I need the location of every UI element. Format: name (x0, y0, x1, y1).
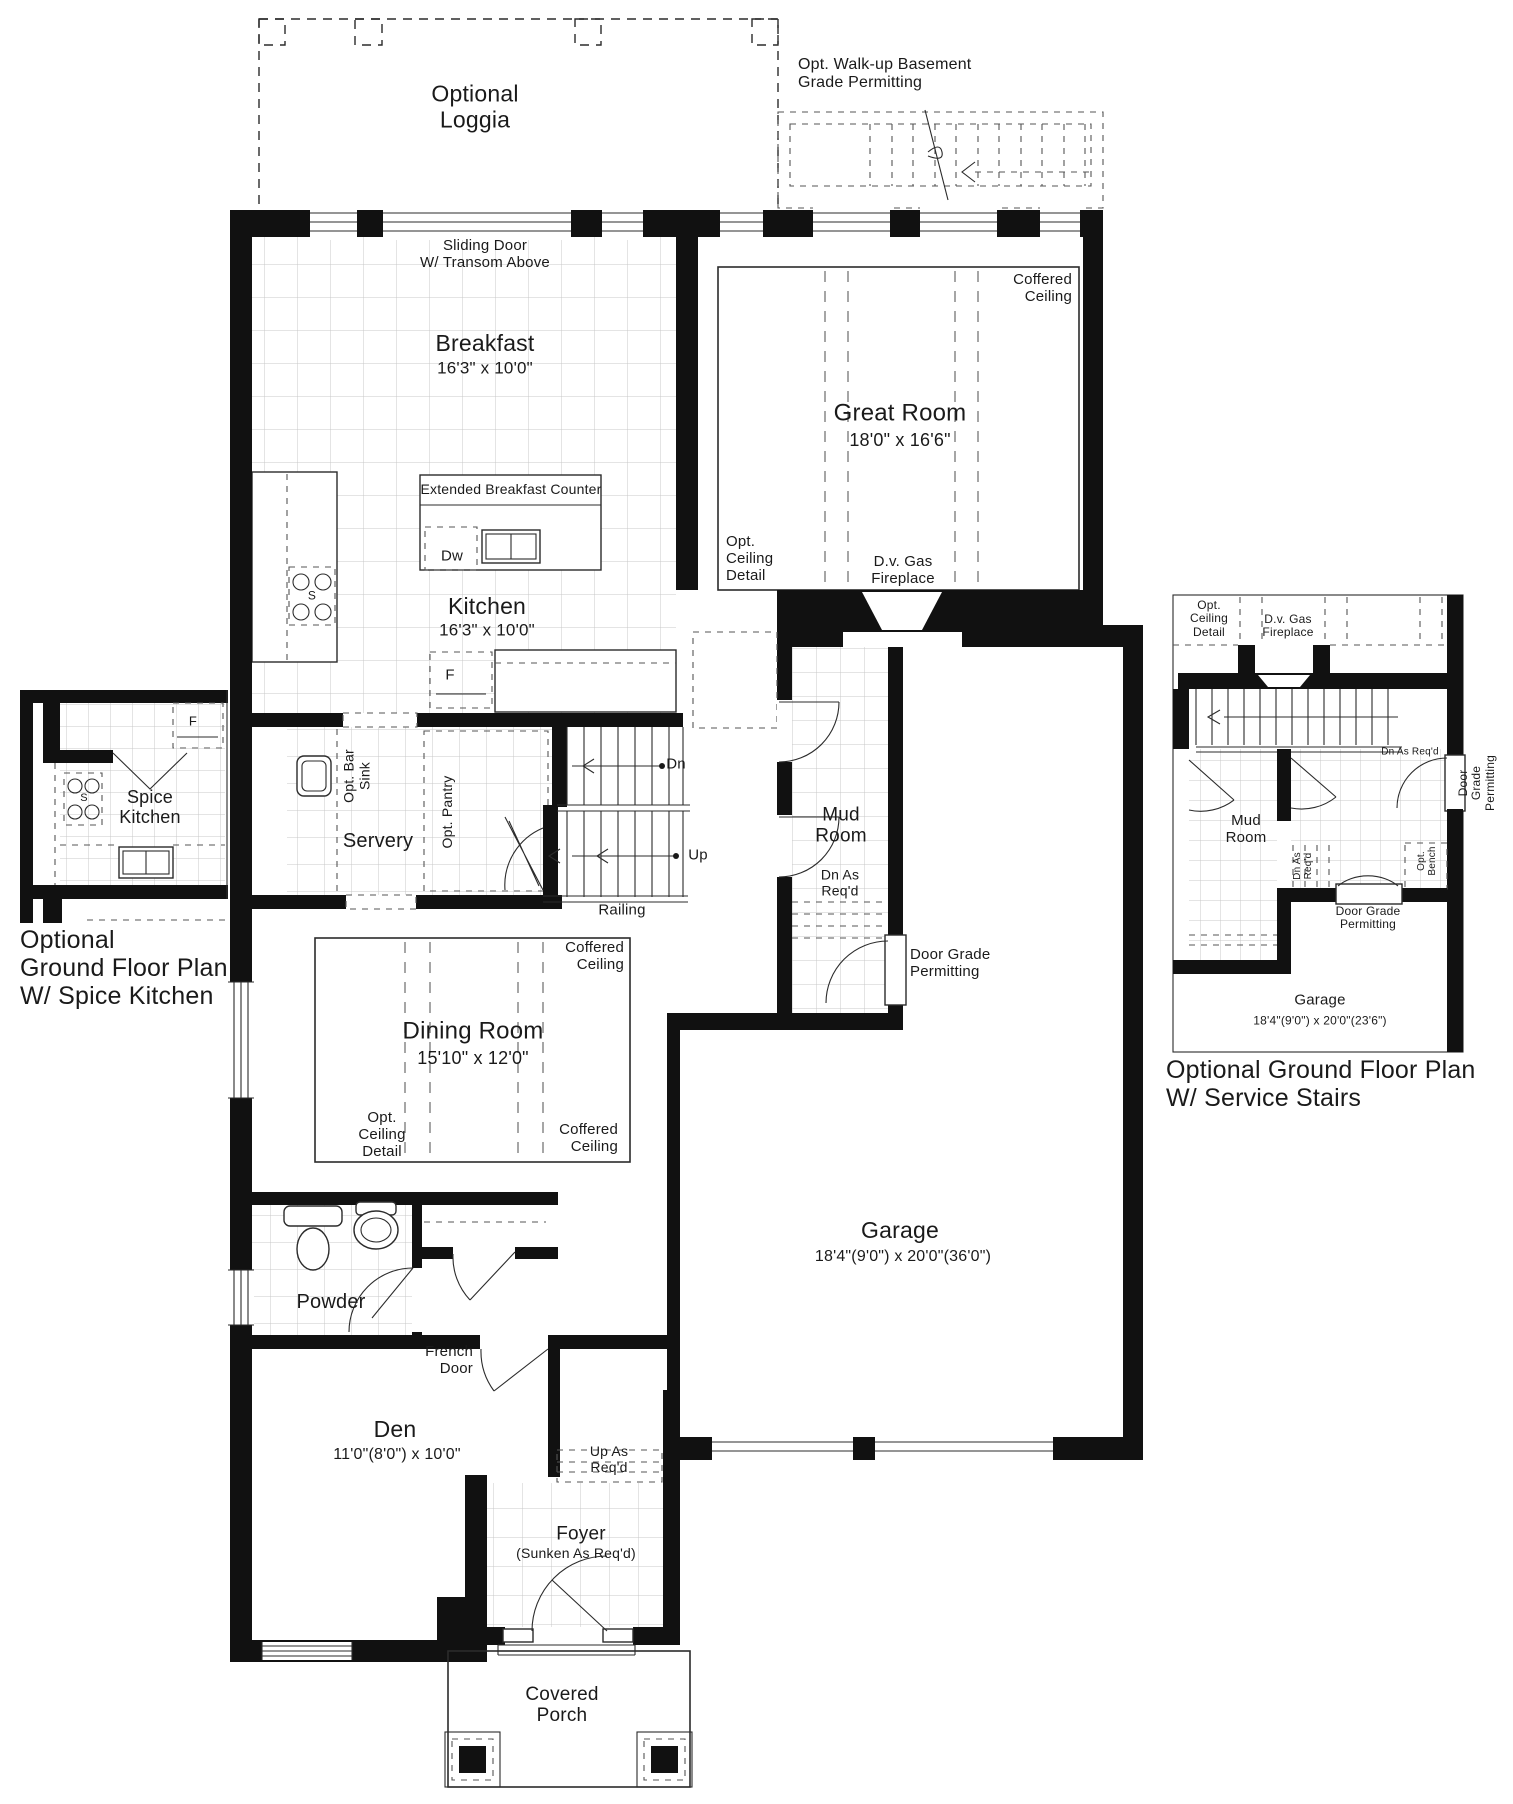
dishwasher-label: Dw (441, 549, 463, 566)
great-room-size: 18'0" x 16'6" (849, 430, 950, 450)
ri-dn-as-reqd-v: Dn As Req'd (1292, 852, 1314, 880)
mud-room-dn-as-reqd: Dn As Req'd (821, 867, 859, 898)
garage-name: Garage (861, 1218, 939, 1244)
spice-kitchen-fridge-label: F (189, 715, 197, 730)
railing-label: Railing (598, 903, 645, 920)
breakfast-name: Breakfast (436, 331, 535, 357)
opt-bar-sink-label: Opt. Bar Sink (341, 749, 372, 803)
den-name: Den (374, 1417, 417, 1443)
up-as-reqd-label: Up As Req'd (590, 1444, 628, 1475)
great-room-name: Great Room (834, 401, 967, 428)
dining-room-name: Dining Room (403, 1019, 544, 1046)
ri-door-grade-permitting-v: Door Grade Permitting (1457, 755, 1497, 811)
covered-porch-name: Covered Porch (525, 1684, 598, 1727)
dining-room-size: 15'10" x 12'0" (417, 1048, 529, 1068)
loggia-label: Optional Loggia (431, 81, 518, 133)
floor-plan-page: Optional LoggiaOpt. Walk-up Basement Gra… (0, 0, 1513, 1804)
extended-breakfast-counter-label: Extended Breakfast Counter (420, 482, 601, 498)
breakfast-size: 16'3" x 10'0" (437, 358, 533, 377)
great-room-coffered-ceiling: Coffered Ceiling (1013, 272, 1072, 306)
kitchen-name: Kitchen (448, 594, 526, 620)
ri-opt-ceiling-detail: Opt. Ceiling Detail (1190, 599, 1228, 639)
spice-kitchen-stove-label: S (80, 792, 88, 804)
sliding-door-label: Sliding Door W/ Transom Above (420, 238, 550, 272)
french-door-label: French Door (425, 1344, 473, 1378)
ri-door-grade-permitting-h: Door Grade Permitting (1336, 905, 1401, 932)
dining-opt-ceiling-detail: Opt. Ceiling Detail (358, 1110, 405, 1160)
foyer-sunken-label: (Sunken As Req'd) (516, 1546, 636, 1562)
stair-up-label: Up (688, 848, 708, 865)
ri-fireplace-label: D.v. Gas Fireplace (1262, 613, 1313, 640)
door-grade-permitting-label: Door Grade Permitting (910, 947, 990, 981)
dining-coffered-ceiling-br: Coffered Ceiling (559, 1122, 618, 1156)
servery-name: Servery (343, 830, 413, 852)
walkup-basement-label: Opt. Walk-up Basement Grade Permitting (798, 56, 971, 92)
stove-label: S (308, 589, 316, 602)
left-inset-caption: Optional Ground Floor Plan W/ Spice Kitc… (20, 926, 228, 1010)
stair-dn-label: Dn (666, 757, 686, 774)
labels-layer: Optional LoggiaOpt. Walk-up Basement Gra… (0, 0, 1513, 1804)
ri-dn-as-reqd-landing: Dn As Req'd (1381, 746, 1438, 757)
ri-mud-room-name: Mud Room (1226, 813, 1267, 847)
foyer-name: Foyer (556, 1523, 606, 1544)
powder-name: Powder (296, 1291, 365, 1313)
garage-size: 18'4"(9'0") x 20'0"(36'0") (815, 1248, 991, 1266)
ri-garage-size: 18'4"(9'0") x 20'0"(23'6") (1253, 1014, 1386, 1027)
dining-coffered-ceiling-tr: Coffered Ceiling (565, 940, 624, 974)
ri-garage-name: Garage (1294, 993, 1345, 1010)
den-size: 11'0"(8'0") x 10'0" (333, 1446, 461, 1464)
opt-pantry-label: Opt. Pantry (440, 775, 456, 848)
right-inset-caption: Optional Ground Floor Plan W/ Service St… (1166, 1056, 1476, 1112)
kitchen-size: 16'3" x 10'0" (439, 620, 535, 639)
ri-opt-bench-v: Opt. Bench (1416, 846, 1438, 875)
great-room-opt-ceiling-detail: Opt. Ceiling Detail (726, 534, 773, 584)
spice-kitchen-name: Spice Kitchen (119, 787, 180, 827)
fridge-label: F (445, 668, 454, 685)
great-room-fireplace-label: D.v. Gas Fireplace (871, 554, 935, 588)
mud-room-name: Mud Room (815, 805, 866, 848)
